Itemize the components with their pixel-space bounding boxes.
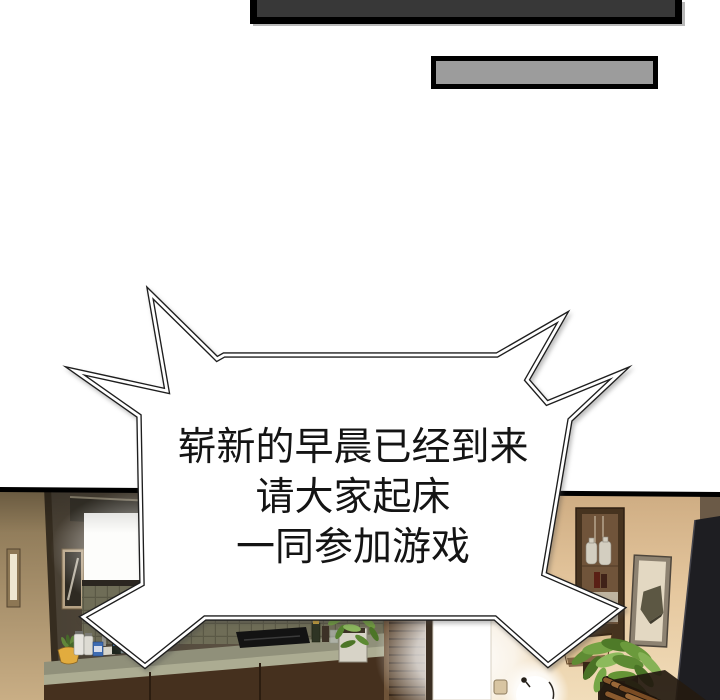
cabinet-bottles	[594, 572, 600, 588]
blue-box	[93, 642, 103, 656]
dish-rack	[141, 578, 189, 620]
light-switch	[494, 680, 507, 694]
white-jars	[74, 631, 93, 655]
bright-doorway	[426, 616, 491, 700]
framed-picture	[630, 555, 672, 647]
display-cabinet	[576, 508, 624, 648]
bubble-line-1: 崭新的早晨已经到来	[133, 423, 573, 473]
bubble-text: 崭新的早晨已经到来 请大家起床 一同参加游戏	[133, 423, 573, 573]
comic-page: 崭新的早晨已经到来 请大家起床 一同参加游戏	[0, 0, 720, 700]
bubble-line-3: 一同参加游戏	[133, 523, 573, 573]
room-photo-panel	[0, 0, 720, 700]
bubble-line-2: 请大家起床	[133, 473, 573, 523]
wall-sconce	[7, 549, 20, 607]
